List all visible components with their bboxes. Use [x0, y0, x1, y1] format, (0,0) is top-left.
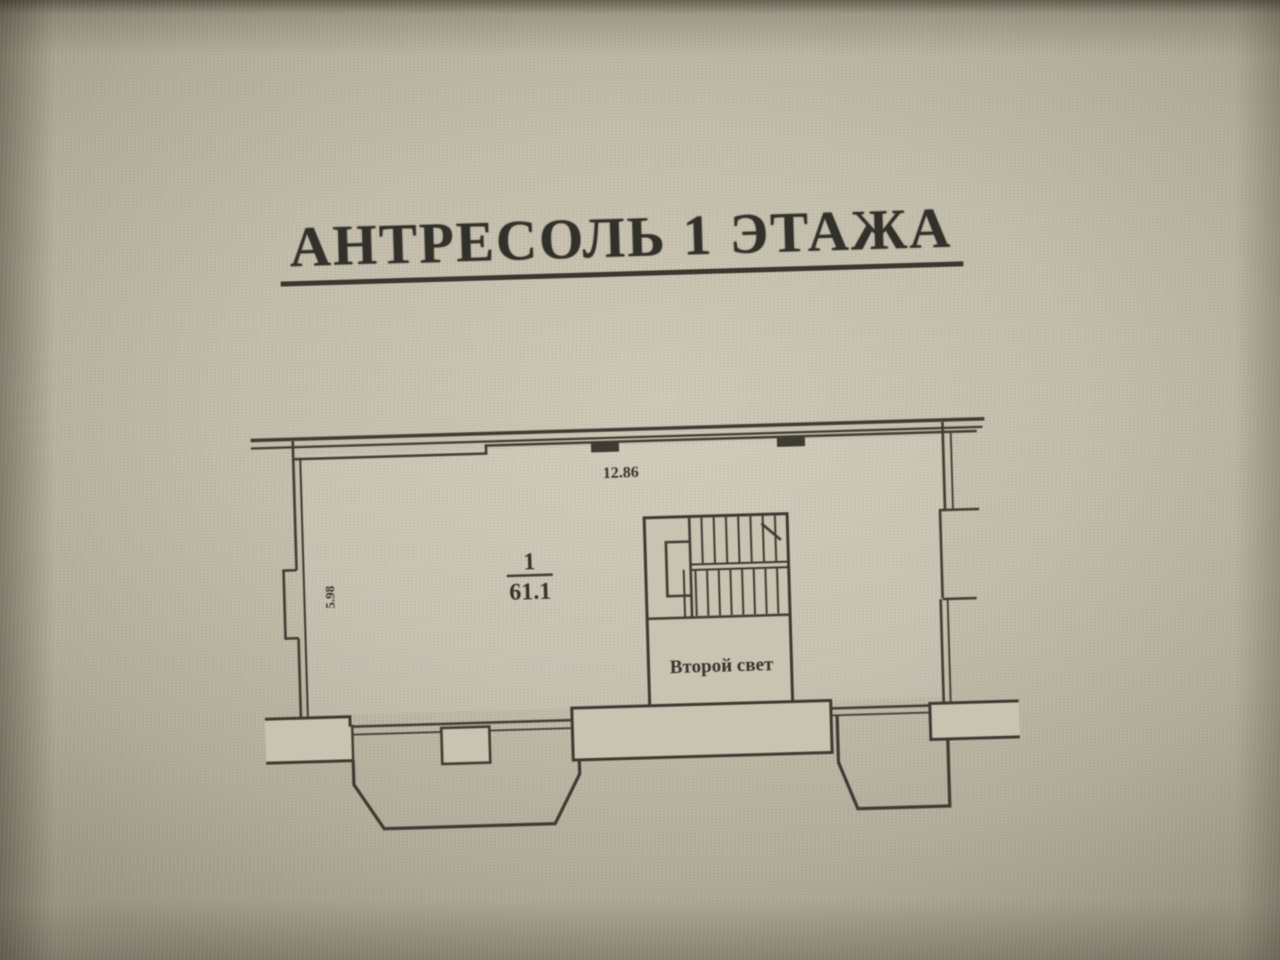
bottom-left-band	[265, 717, 353, 764]
left-wall-outer	[293, 441, 301, 718]
room-area: 61.1	[509, 579, 552, 606]
right-wall	[935, 421, 984, 703]
bottom-right-band-fill	[930, 701, 1020, 740]
title-block: АНТРЕСОЛЬ 1 ЭТАЖА	[289, 199, 953, 286]
fraction-bar	[507, 575, 553, 576]
void-label: Второй свет	[670, 654, 775, 678]
drawing-content: АНТРЕСОЛЬ 1 ЭТАЖА	[0, 0, 1280, 960]
top-dimension-label: 12.86	[603, 464, 639, 482]
bottom-wall-line-right-a	[831, 706, 930, 709]
stair-box: Второй свет	[644, 514, 793, 706]
center-pier	[572, 700, 832, 760]
top-wall-tab-right	[777, 436, 805, 447]
floor-plan-photo: АНТРЕСОЛЬ 1 ЭТАЖА	[0, 0, 1280, 960]
side-dimension-label: 5.98	[322, 585, 338, 609]
right-wall-upper-inner	[951, 432, 953, 509]
floor-plan-svg: Второй свет	[236, 388, 1062, 882]
bottom-square-notch	[441, 727, 490, 764]
right-wall-sill-1	[939, 509, 979, 510]
stair-lower-boundary	[684, 570, 685, 618]
top-wall-tab-left	[591, 442, 619, 453]
right-wall-sill-2	[943, 598, 977, 599]
bottom-right-band	[930, 701, 1020, 740]
left-bay-outline	[353, 754, 581, 830]
left-wall-window-bump	[284, 570, 299, 638]
bottom-left-band-fill	[265, 717, 353, 764]
room-number: 1	[523, 549, 536, 575]
bottom-wall-line-right-b	[831, 712, 930, 715]
bottom-wall-line-left-a	[352, 720, 572, 727]
right-wall-lower-inner	[948, 599, 951, 703]
right-wall-upper-outer	[942, 422, 945, 509]
bottom-left-band-right	[352, 725, 353, 761]
